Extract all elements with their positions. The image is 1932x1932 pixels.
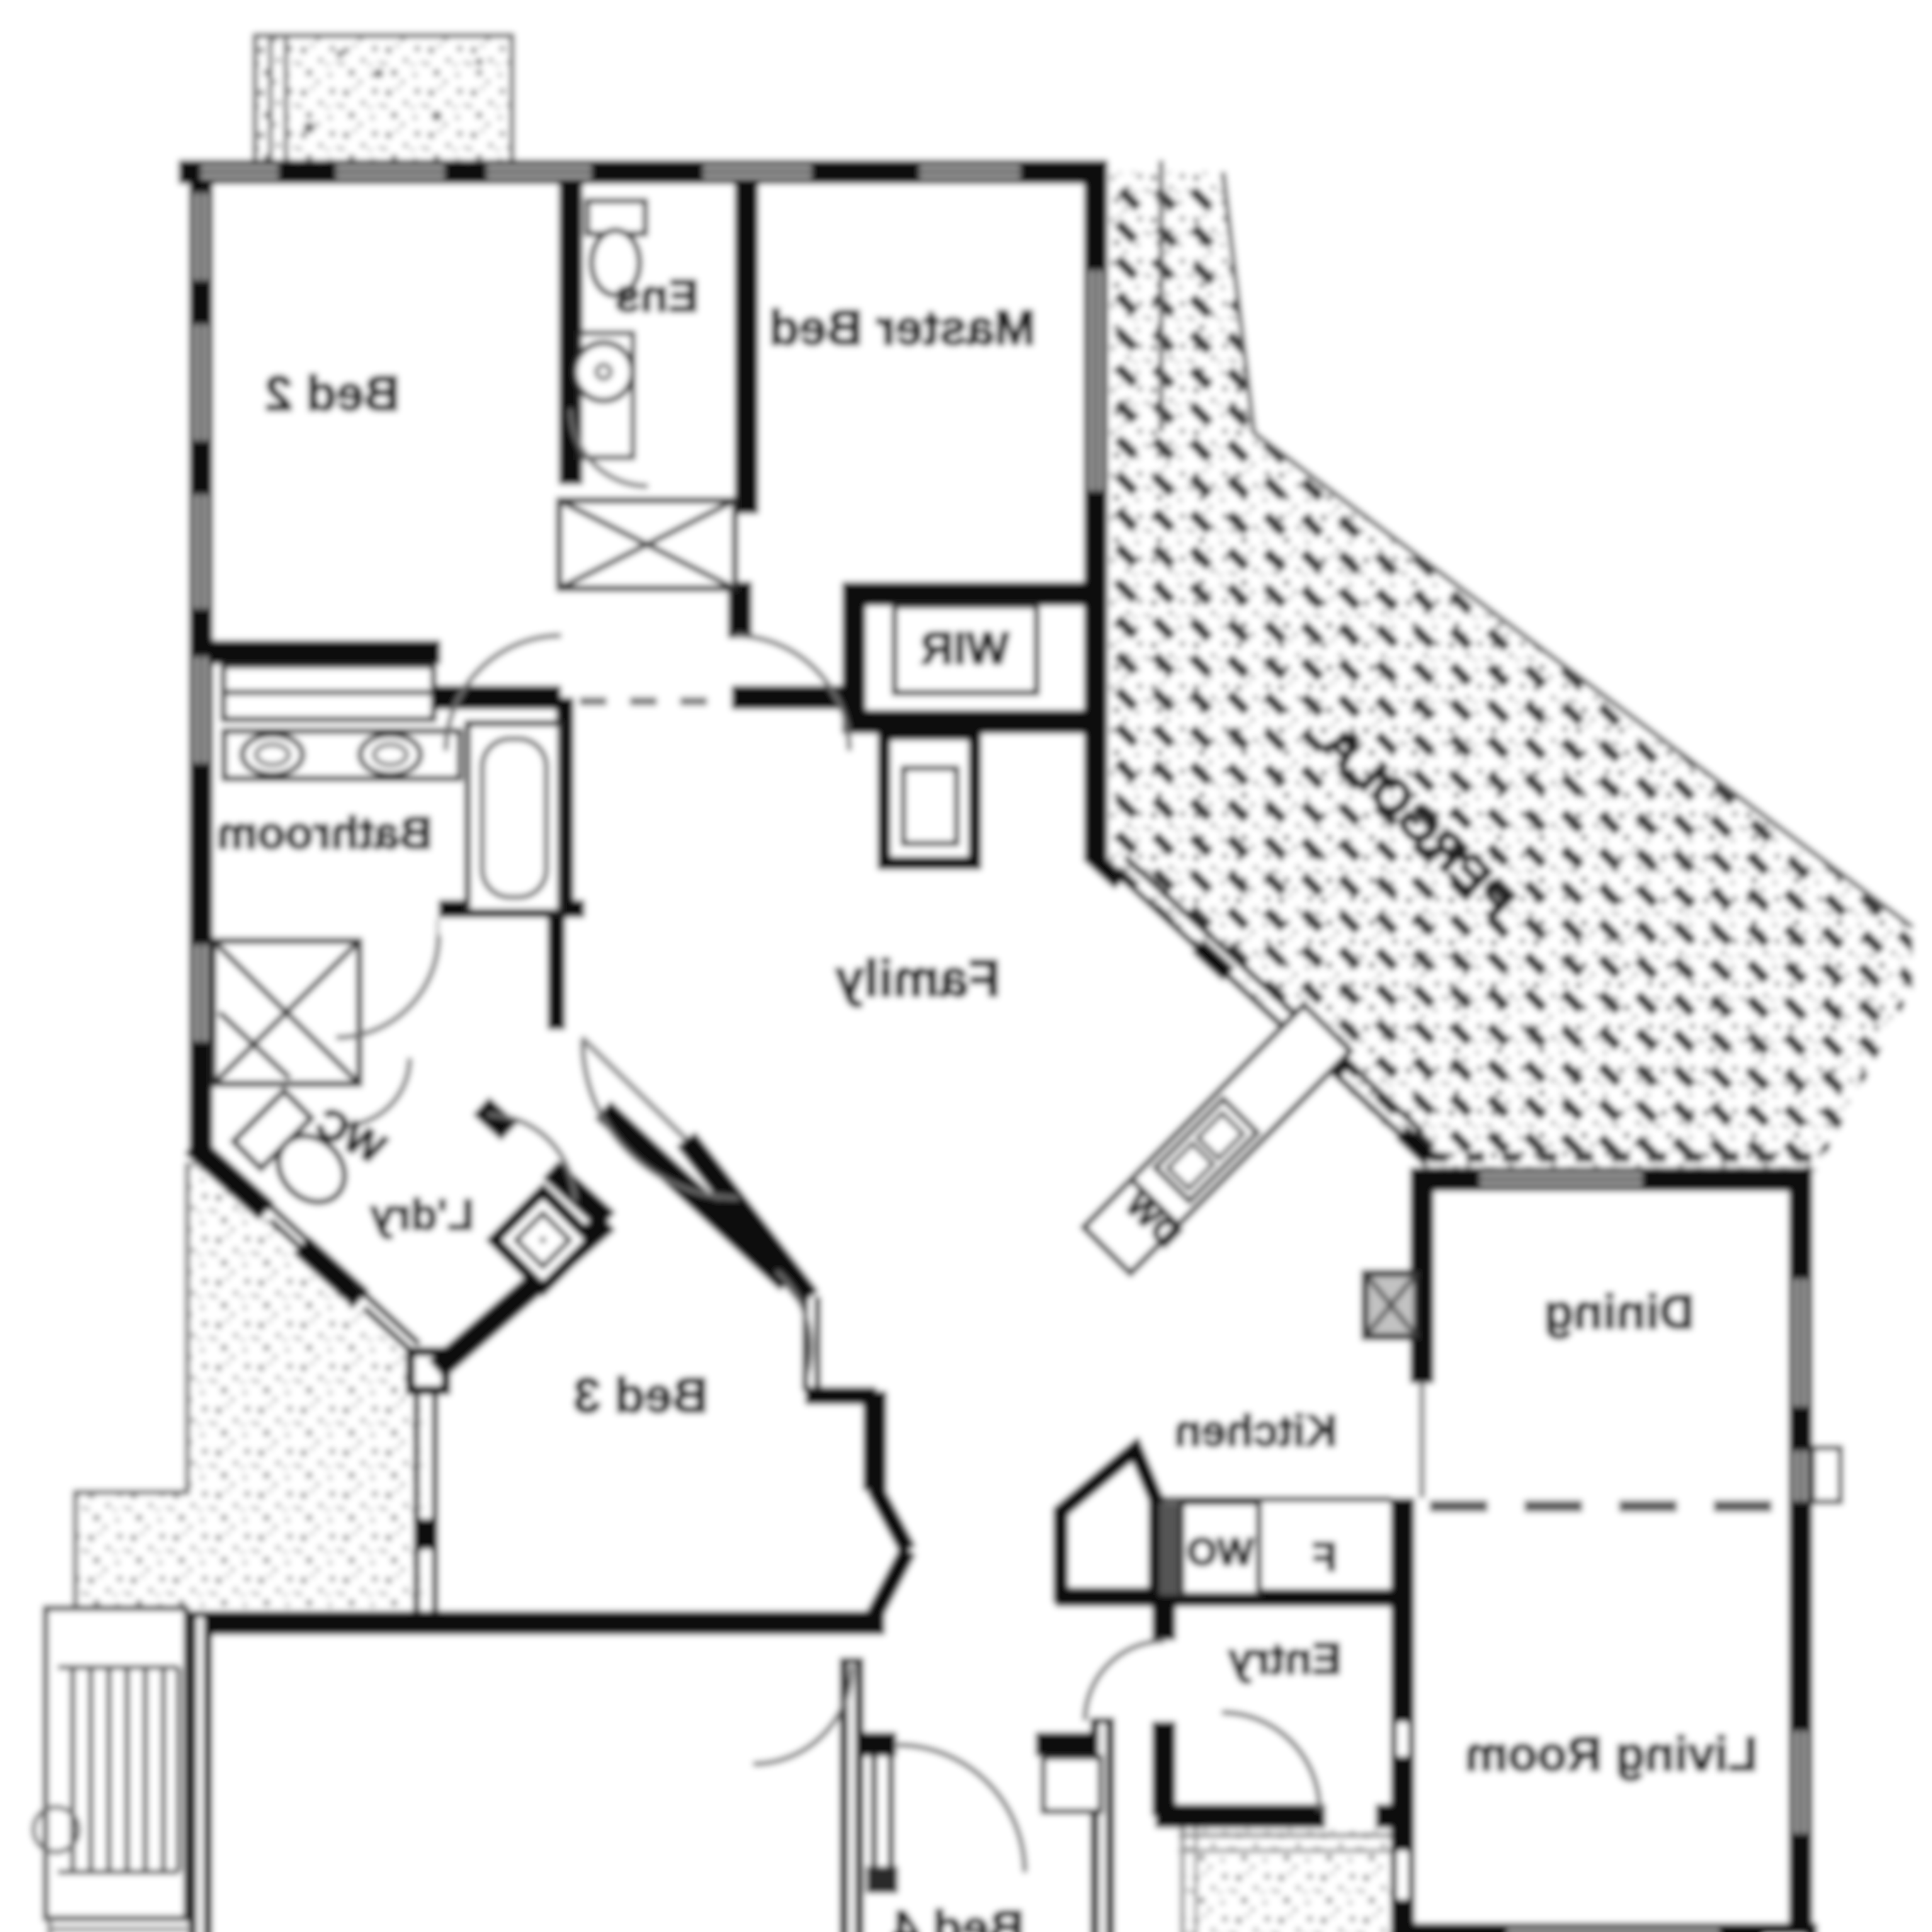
svg-text:Family: Family [835,949,1000,1007]
svg-text:Kitchen: Kitchen [1174,1406,1337,1456]
svg-text:Bed 2: Bed 2 [265,366,400,421]
svg-text:Dining: Dining [1544,1285,1694,1339]
svg-text:Entry: Entry [1228,1634,1342,1684]
svg-text:Bed 4: Bed 4 [893,1901,1024,1932]
svg-text:WIR: WIR [920,623,1009,674]
svg-text:Living Room: Living Room [1465,1727,1758,1781]
svg-text:F: F [1312,1534,1337,1580]
svg-text:L'dry: L'dry [370,1190,474,1239]
svg-text:Bed 3: Bed 3 [573,1368,708,1423]
svg-text:Ens: Ens [615,270,699,321]
svg-text:WO: WO [1187,1530,1253,1573]
svg-text:Bathroom: Bathroom [217,808,432,859]
svg-text:Master Bed: Master Bed [769,300,1036,355]
